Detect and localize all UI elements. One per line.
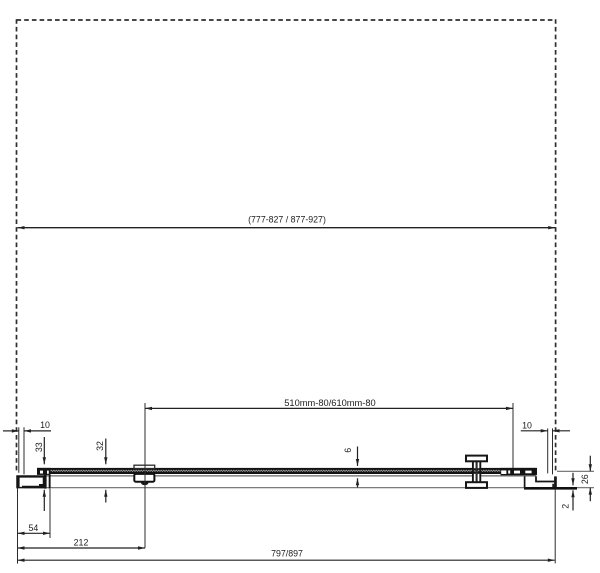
svg-text:26: 26 <box>580 474 590 484</box>
svg-text:2: 2 <box>560 504 570 509</box>
svg-text:212: 212 <box>74 537 89 547</box>
svg-text:33: 33 <box>34 442 44 452</box>
svg-text:10: 10 <box>40 420 50 430</box>
svg-text:32: 32 <box>95 441 105 451</box>
svg-text:797/897: 797/897 <box>271 549 303 559</box>
svg-text:10: 10 <box>522 420 532 430</box>
svg-text:6: 6 <box>343 448 353 453</box>
svg-text:510mm-80/610mm-80: 510mm-80/610mm-80 <box>284 398 375 408</box>
svg-text:54: 54 <box>29 523 39 533</box>
svg-text:(777-827 / 877-927): (777-827 / 877-927) <box>248 214 326 224</box>
